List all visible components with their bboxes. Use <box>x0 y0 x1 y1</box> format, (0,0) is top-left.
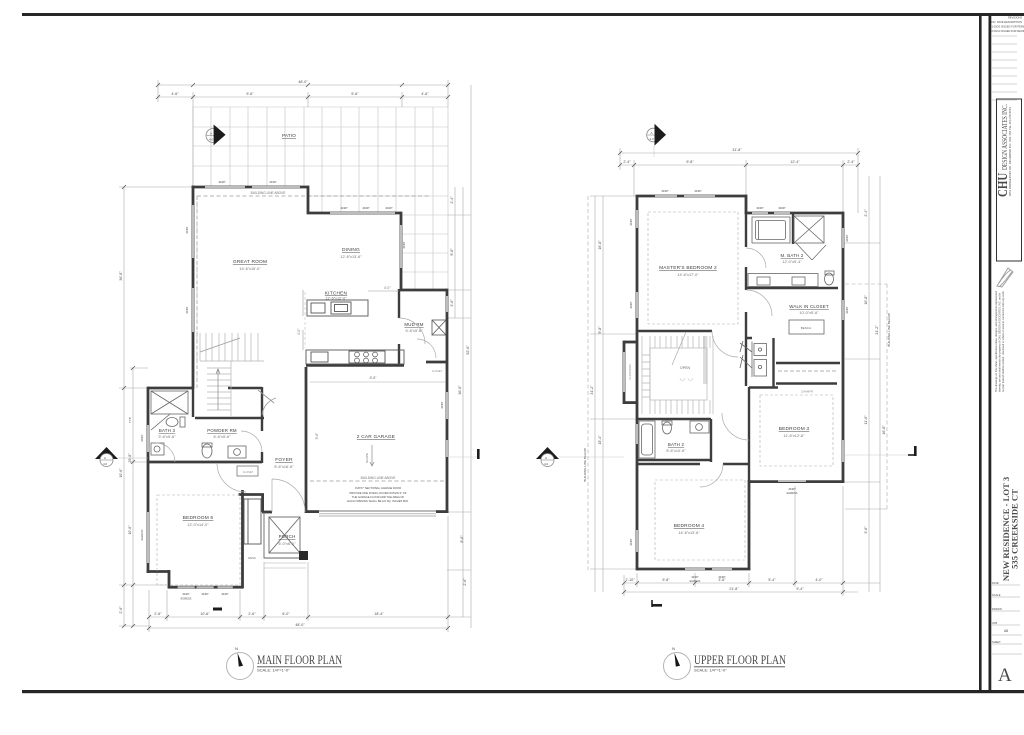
svg-text:36'-6": 36'-6" <box>458 385 462 395</box>
svg-text:14'-6"x17'-0": 14'-6"x17'-0" <box>677 273 699 277</box>
svg-text:CLOSET: CLOSET <box>432 369 443 373</box>
svg-text:CLOSET: CLOSET <box>243 470 254 474</box>
svg-text:DRAWN: DRAWN <box>992 607 1002 611</box>
svg-text:5'-6": 5'-6" <box>351 92 359 96</box>
svg-text:A: A <box>210 132 212 136</box>
svg-text:31'-2": 31'-2" <box>875 325 879 335</box>
svg-text:2'-6": 2'-6" <box>119 606 123 614</box>
svg-text:A: A <box>104 456 106 460</box>
svg-text:4040T: 4040T <box>629 218 633 226</box>
svg-text:THE GARAGE FLOOR AND THE AREA: THE GARAGE FLOOR AND THE AREA OF <box>352 495 405 499</box>
svg-text:N: N <box>672 646 675 651</box>
svg-text:2'-6": 2'-6" <box>463 578 467 586</box>
svg-text:9'-8": 9'-8" <box>662 578 670 582</box>
svg-text:9'-8": 9'-8" <box>598 326 602 334</box>
svg-text:12'-0"x14'-0": 12'-0"x14'-0" <box>187 523 209 527</box>
svg-text:A8: A8 <box>1004 629 1008 633</box>
svg-text:12'-6"x13'-6": 12'-6"x13'-6" <box>340 255 362 259</box>
svg-text:4040T: 4040T <box>385 206 393 210</box>
svg-text:CHAMFR: CHAMFR <box>801 390 813 394</box>
svg-text:3030T: 3030T <box>756 206 764 210</box>
svg-text:16'-8": 16'-8" <box>864 295 868 305</box>
svg-text:15'-4": 15'-4" <box>598 435 602 445</box>
svg-text:A: A <box>545 456 547 460</box>
svg-text:2'-4": 2'-4" <box>623 160 631 164</box>
svg-text:BENCH: BENCH <box>801 326 812 330</box>
svg-text:10'-6": 10'-6" <box>128 525 132 535</box>
svg-text:SCALE: 1/4"=1'-0": SCALE: 1/4"=1'-0" <box>694 668 727 673</box>
svg-text:10'-6": 10'-6" <box>119 468 123 478</box>
svg-text:SCALE: SCALE <box>992 593 1001 597</box>
svg-text:EGRESS: EGRESS <box>140 529 144 540</box>
svg-text:SHEET: SHEET <box>992 640 1001 644</box>
svg-text:4040T: 4040T <box>718 575 726 579</box>
svg-text:2'-6": 2'-6" <box>154 612 162 616</box>
svg-text:4040T: 4040T <box>661 189 669 193</box>
svg-text:MASTER'S BEDROOM 2: MASTER'S BEDROOM 2 <box>659 265 717 271</box>
svg-text:N: N <box>235 646 238 651</box>
svg-text:BUILDING LINE ABOVE: BUILDING LINE ABOVE <box>251 191 286 195</box>
svg-text:5'-4": 5'-4" <box>768 578 776 582</box>
svg-text:18'-4": 18'-4" <box>374 612 384 616</box>
svg-text:TYP.: TYP. <box>128 417 132 423</box>
svg-text:36'-8": 36'-8" <box>119 271 123 281</box>
svg-text:DINING: DINING <box>342 247 360 253</box>
svg-text:4040T: 4040T <box>845 306 849 314</box>
svg-text:JOB: JOB <box>992 621 997 625</box>
svg-text:4040T: 4040T <box>201 592 209 596</box>
svg-text:DESK: DESK <box>248 556 256 560</box>
svg-text:FOYER: FOYER <box>275 457 293 463</box>
svg-text:EGRESS: EGRESS <box>690 579 701 583</box>
svg-text:3030T: 3030T <box>778 206 786 210</box>
svg-text:4040T: 4040T <box>362 206 370 210</box>
svg-text:6'-0": 6'-0" <box>282 612 290 616</box>
svg-text:POWDER RM: POWDER RM <box>207 428 237 433</box>
svg-text:14'-6"x15'-0": 14'-6"x15'-0" <box>239 267 261 271</box>
svg-text:5'-6"x10'-6": 5'-6"x10'-6" <box>666 449 686 453</box>
svg-text:4040T: 4040T <box>340 206 348 210</box>
svg-text:4040T: 4040T <box>629 538 633 546</box>
svg-text:8'-8": 8'-8" <box>370 376 378 380</box>
svg-text:EACH OPENING SHALL BE A/2 SQ.: EACH OPENING SHALL BE A/2 SQ. INCHES MIN… <box>347 499 409 503</box>
svg-text:4040T: 4040T <box>185 306 189 314</box>
svg-text:4'-0": 4'-0" <box>297 329 301 335</box>
svg-text:4040T: 4040T <box>402 241 406 249</box>
svg-text:PATIO: PATIO <box>282 133 296 138</box>
svg-text:12'-4": 12'-4" <box>790 160 800 164</box>
svg-text:4040T: 4040T <box>694 189 702 193</box>
svg-text:4.0: 4.0 <box>209 138 214 142</box>
svg-text:31'-2": 31'-2" <box>590 385 594 395</box>
svg-text:3'-6": 3'-6" <box>450 299 454 307</box>
svg-text:16'-8": 16'-8" <box>882 425 886 435</box>
svg-text:BATH 2: BATH 2 <box>668 442 685 447</box>
svg-text:52'-6": 52'-6" <box>466 345 470 355</box>
svg-text:2 CAR GARAGE: 2 CAR GARAGE <box>357 434 395 440</box>
svg-text:GREAT ROOM: GREAT ROOM <box>233 259 267 265</box>
svg-text:4.0: 4.0 <box>103 462 108 466</box>
svg-text:4.0: 4.0 <box>544 462 549 466</box>
svg-text:10'-0"x5'-6": 10'-0"x5'-6" <box>799 311 819 315</box>
svg-text:REVISIONS: REVISIONS <box>1008 16 1022 20</box>
svg-text:SCALE: 1/4"=1'-0": SCALE: 1/4"=1'-0" <box>257 668 290 673</box>
svg-text:A: A <box>998 665 1012 686</box>
svg-text:9'-8": 9'-8" <box>686 160 694 164</box>
svg-text:The drawings on this sheet, sp: The drawings on this sheet, specificatio… <box>994 290 998 392</box>
svg-text:48'-0": 48'-0" <box>298 80 308 84</box>
svg-text:MAIN FLOOR PLAN: MAIN FLOOR PLAN <box>257 653 342 667</box>
svg-text:5'-6"x5'-6": 5'-6"x5'-6" <box>158 435 176 439</box>
svg-text:2'-4": 2'-4" <box>847 160 855 164</box>
svg-text:BEDROOM 4: BEDROOM 4 <box>674 523 705 529</box>
svg-text:9'x8'X7' SECTIONAL GARAGE DOOR: 9'x8'X7' SECTIONAL GARAGE DOOR <box>355 486 401 490</box>
svg-text:48'-0": 48'-0" <box>295 623 305 627</box>
svg-text:6'-6"x5'-6": 6'-6"x5'-6" <box>213 435 231 439</box>
svg-text:4'-0": 4'-0" <box>384 286 390 290</box>
svg-text:4'-6": 4'-6" <box>421 92 429 96</box>
svg-text:3'-6": 3'-6" <box>864 526 868 534</box>
svg-text:BEDROOM 3: BEDROOM 3 <box>779 426 810 432</box>
svg-text:3030T: 3030T <box>845 234 849 242</box>
svg-text:4'-6": 4'-6" <box>171 92 179 96</box>
svg-text:PLATFORM: PLATFORM <box>628 364 632 380</box>
svg-text:4040T: 4040T <box>440 401 444 409</box>
svg-text:9'-6": 9'-6" <box>246 92 254 96</box>
svg-text:4040T: 4040T <box>218 180 226 184</box>
svg-text:21'-8": 21'-8" <box>729 587 739 591</box>
svg-text:4040T: 4040T <box>788 487 796 491</box>
svg-text:11'-6"x12'-6": 11'-6"x12'-6" <box>784 434 806 438</box>
svg-text:2'-4": 2'-4" <box>864 209 868 217</box>
svg-text:9'-6": 9'-6" <box>315 432 319 440</box>
svg-text:BUILDING LINE ABOVE: BUILDING LINE ABOVE <box>361 476 396 480</box>
svg-text:NO. DATE DESCRIPTION: NO. DATE DESCRIPTION <box>992 20 1023 24</box>
svg-text:11'-6": 11'-6" <box>864 415 868 425</box>
svg-text:M. BATH 2: M. BATH 2 <box>781 253 804 258</box>
svg-text:4040T: 4040T <box>629 301 633 309</box>
svg-text:29'-8": 29'-8" <box>128 453 132 463</box>
svg-text:8'-6": 8'-6" <box>460 535 464 543</box>
svg-text:OPEN: OPEN <box>680 366 691 370</box>
svg-text:BEDROOM 5: BEDROOM 5 <box>183 515 214 521</box>
svg-text:BUILDING LINE BELOW: BUILDING LINE BELOW <box>887 313 891 347</box>
svg-text:2'-4": 2'-4" <box>450 196 454 204</box>
svg-text:9'-8": 9'-8" <box>450 248 454 256</box>
svg-text:3030T: 3030T <box>140 434 144 442</box>
svg-text:1 05/20 ISSUED FOR PERMIT: 1 05/20 ISSUED FOR PERMIT <box>992 25 1024 29</box>
svg-text:12'-0"x5'-4": 12'-0"x5'-4" <box>782 260 802 264</box>
svg-text:4'-0": 4'-0" <box>815 578 823 582</box>
svg-text:UPPER FLOOR PLAN: UPPER FLOOR PLAN <box>694 653 786 667</box>
svg-text:4040T: 4040T <box>269 180 277 184</box>
svg-text:4040T: 4040T <box>221 592 229 596</box>
svg-text:4.0: 4.0 <box>650 137 655 141</box>
svg-text:A: A <box>651 131 653 135</box>
svg-text:2 06/11 ISSUED FOR REVIEW: 2 06/11 ISSUED FOR REVIEW <box>992 29 1024 33</box>
svg-text:4040T: 4040T <box>185 226 189 234</box>
svg-text:535 CREEKSIDE CT: 535 CREEKSIDE CT <box>1010 489 1020 569</box>
svg-text:BUILDING LINE BELOW: BUILDING LINE BELOW <box>583 448 587 482</box>
svg-text:EGRESS: EGRESS <box>181 597 192 601</box>
svg-text:31'-8": 31'-8" <box>732 148 742 152</box>
svg-text:16'-8": 16'-8" <box>598 240 602 250</box>
svg-text:4040T: 4040T <box>182 592 190 596</box>
svg-text:1'-10": 1'-10" <box>625 578 635 582</box>
svg-text:BATH 3: BATH 3 <box>159 428 176 433</box>
svg-text:5'-6"x16'-6": 5'-6"x16'-6" <box>274 465 294 469</box>
svg-text:9251 BRIDGEPORT RD. RICHMOND: 9251 BRIDGEPORT RD. RICHMOND B.C. V6X 1S… <box>1008 107 1012 196</box>
svg-text:9'-4": 9'-4" <box>796 587 804 591</box>
svg-text:WALK IN CLOSET: WALK IN CLOSET <box>789 304 829 309</box>
svg-text:thereby, are and shall remain: thereby, are and shall remain the proper… <box>997 292 1001 392</box>
svg-text:14'-6"x13'-6": 14'-6"x13'-6" <box>678 531 700 535</box>
svg-text:no part thereof shall be carri: no part thereof shall be carried , discl… <box>1001 291 1005 392</box>
svg-text:2'-6": 2'-6" <box>248 612 256 616</box>
svg-text:SLOPE: SLOPE <box>365 453 369 463</box>
svg-text:10'-6": 10'-6" <box>200 612 210 616</box>
svg-text:PROVIDE ONE FIXED LOUVER WITHI: PROVIDE ONE FIXED LOUVER WITHIN 6" OF <box>349 491 406 495</box>
svg-text:DATE: DATE <box>992 581 999 585</box>
svg-text:4040T: 4040T <box>691 575 699 579</box>
svg-text:EGRESS: EGRESS <box>787 491 798 495</box>
